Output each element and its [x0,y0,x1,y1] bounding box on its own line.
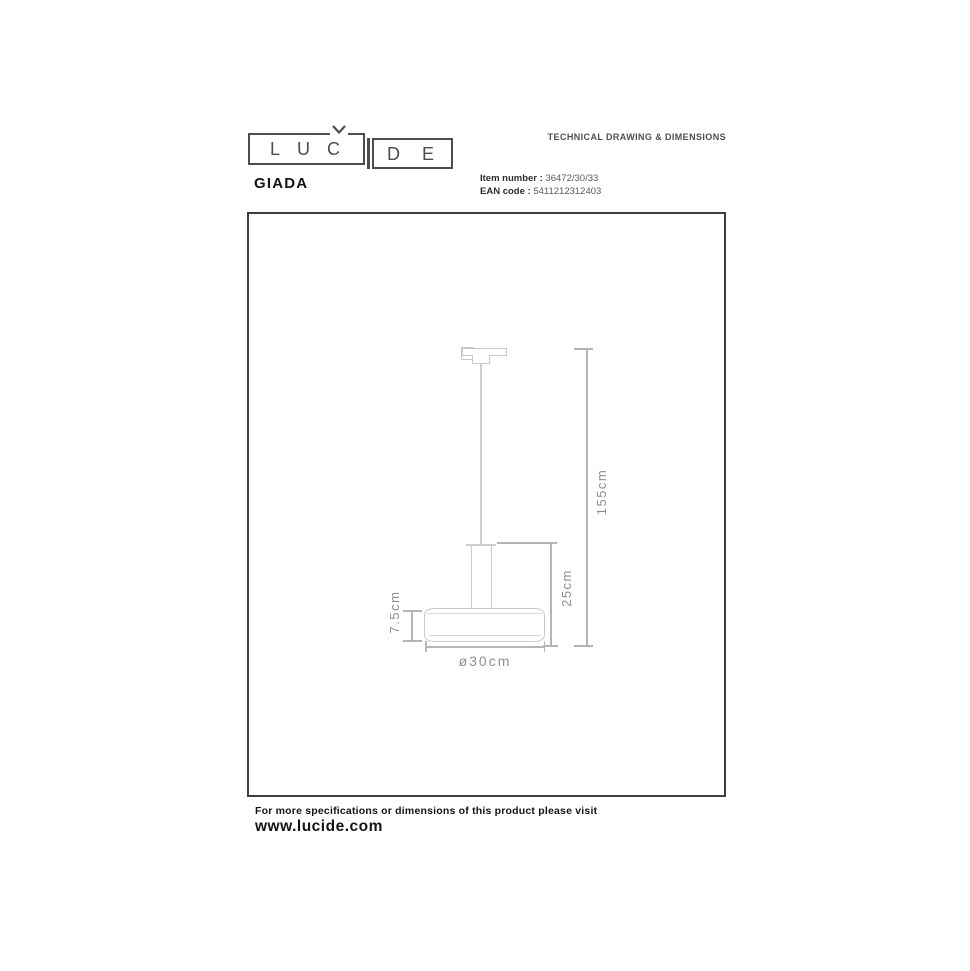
dim-tick [497,542,557,544]
item-number-label: Item number : [480,173,543,184]
document-type-label: TECHNICAL DRAWING & DIMENSIONS [400,132,726,142]
logo-letters-luc: LUC [256,140,357,158]
ean-label: EAN code : [480,186,531,197]
dim-line-total-height [586,348,588,647]
website-link[interactable]: www.lucide.com [255,818,383,836]
dim-tick [403,610,422,612]
dim-tick [543,645,558,647]
lamp-shade-inner-line [429,635,540,636]
dim-tick [544,641,546,652]
ean-row: EAN code : 5411212312403 [480,185,601,198]
dim-line-fixture-height [550,542,552,647]
item-number-row: Item number : 36472/30/33 [480,172,601,185]
spec-sheet-page: LUC DE TECHNICAL DRAWING & DIMENSIONS GI… [0,0,970,971]
lamp-stem-tube [471,545,492,609]
dim-tick [574,348,593,350]
product-codes: Item number : 36472/30/33 EAN code : 541… [480,172,601,198]
drawing-border-frame [247,212,726,797]
total-height-label: 155cm [593,452,611,532]
ean-value: 5411212312403 [533,186,601,197]
product-name: GIADA [254,175,308,192]
logo-letters-de: DE [369,145,456,163]
logo-right-box: DE [372,138,453,169]
lamp-suspension-cable [480,363,482,545]
dim-tick [425,641,427,652]
dim-line-diameter [425,646,545,648]
shade-height-label: 7.5cm [386,572,404,652]
dim-tick [574,645,593,647]
footer-note: For more specifications or dimensions of… [255,805,597,817]
logo-left-box: LUC [248,133,365,165]
dim-tick [403,640,422,642]
dim-line-shade-height [411,610,413,642]
lamp-shade-rim-line [427,613,542,614]
diameter-label: ø30cm [445,652,525,670]
fixture-height-label: 25cm [558,548,576,628]
item-number-value: 36472/30/33 [545,173,598,184]
caron-mark-icon [330,124,348,137]
